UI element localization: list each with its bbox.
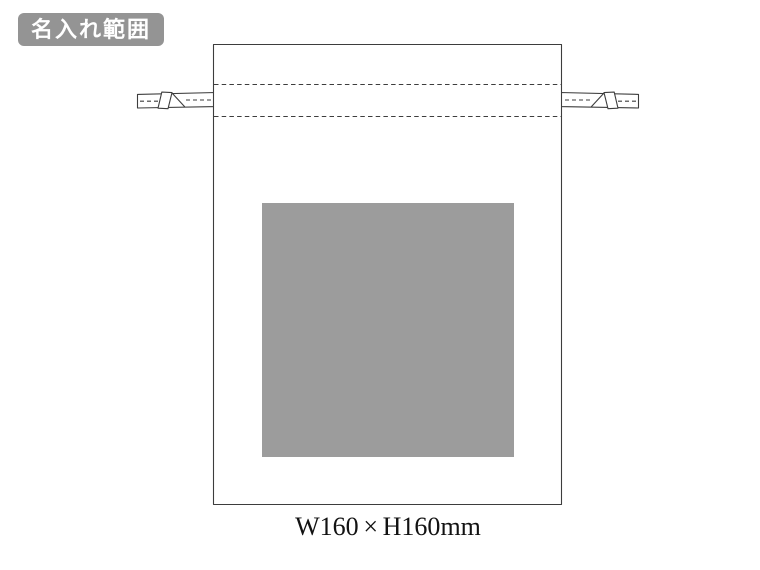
print-area bbox=[262, 203, 514, 457]
caption-times-sign: × bbox=[363, 512, 378, 541]
right-cord-band bbox=[560, 93, 639, 109]
print-size-caption: W160×H160mm bbox=[214, 511, 562, 543]
drawstring-bag-diagram bbox=[0, 0, 760, 570]
left-drawstring-cord bbox=[138, 92, 217, 109]
caption-width: W160 bbox=[295, 512, 359, 541]
caption-height: H160 bbox=[383, 512, 441, 541]
right-drawstring-cord bbox=[560, 92, 639, 109]
name-print-area-page: 名入れ範囲 bbox=[0, 0, 760, 570]
left-cord-band bbox=[138, 93, 217, 109]
caption-unit: mm bbox=[440, 512, 480, 541]
